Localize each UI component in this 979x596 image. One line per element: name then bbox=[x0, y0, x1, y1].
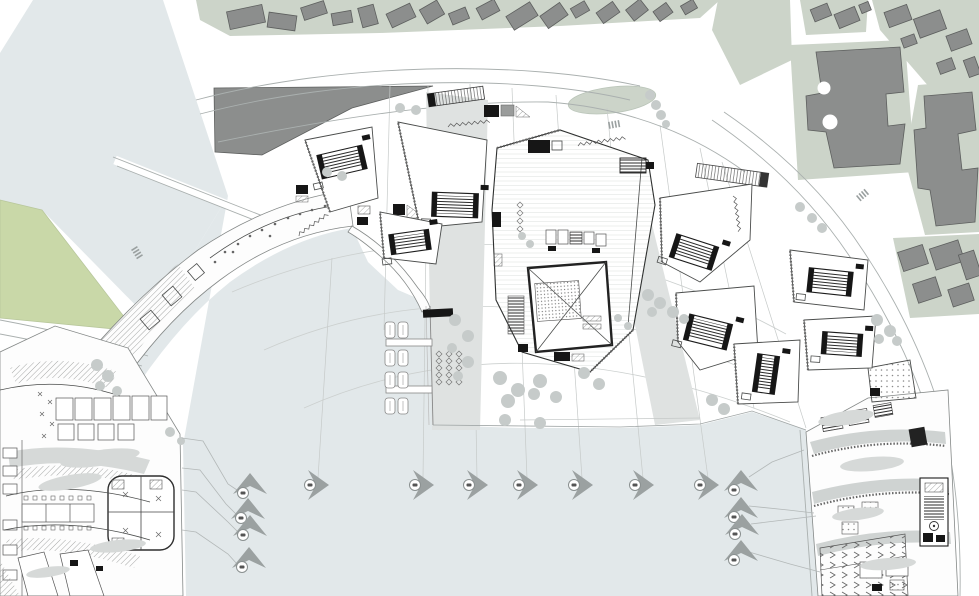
tree-icon bbox=[493, 371, 507, 385]
tree-icon bbox=[550, 391, 562, 403]
tree-icon bbox=[499, 414, 511, 426]
city-block-b1 bbox=[712, 0, 792, 85]
tree-icon bbox=[165, 427, 175, 437]
core-cap bbox=[473, 194, 479, 218]
satellite-room bbox=[481, 185, 489, 190]
boat bbox=[398, 322, 408, 338]
pavilion-building bbox=[790, 250, 868, 310]
tree-icon bbox=[647, 307, 657, 317]
pavilion-building bbox=[804, 316, 876, 370]
tree-icon bbox=[91, 359, 103, 371]
tree-icon bbox=[533, 374, 547, 388]
ramp-wedge bbox=[516, 106, 530, 117]
kiosk bbox=[393, 204, 405, 215]
stair-west bbox=[494, 254, 502, 266]
tree-icon bbox=[679, 314, 689, 324]
arc-stair bbox=[358, 206, 370, 214]
tree-icon bbox=[528, 388, 540, 400]
tree-icon bbox=[624, 322, 632, 330]
courtyard-tree bbox=[823, 115, 838, 130]
tree-icon bbox=[395, 103, 405, 113]
stair-strip bbox=[508, 296, 524, 334]
tree-icon bbox=[526, 240, 534, 248]
core-west bbox=[492, 212, 501, 227]
tree-icon bbox=[518, 232, 526, 240]
satellite-room bbox=[865, 326, 873, 332]
tree-icon bbox=[411, 105, 421, 115]
tree-icon bbox=[817, 223, 827, 233]
tree-icon bbox=[614, 314, 622, 322]
kiosk bbox=[296, 185, 308, 194]
stair-south bbox=[572, 354, 584, 361]
tree-icon bbox=[322, 167, 332, 177]
central-main-building bbox=[492, 130, 655, 372]
tree-icon bbox=[884, 325, 896, 337]
tree-icon bbox=[654, 297, 666, 309]
marker-label-smudge bbox=[308, 484, 313, 487]
canteen-block bbox=[22, 504, 94, 522]
pond-green-oval bbox=[567, 82, 658, 119]
tree-icon bbox=[578, 367, 590, 379]
core-south bbox=[554, 352, 570, 361]
marker-label-smudge bbox=[241, 492, 246, 495]
dark-room bbox=[909, 427, 928, 448]
marker-label-smudge bbox=[240, 566, 245, 569]
tree-icon bbox=[112, 386, 122, 396]
kiosk bbox=[357, 217, 368, 225]
tree-icon bbox=[453, 371, 463, 381]
tree-icon bbox=[462, 356, 474, 368]
boat bbox=[385, 350, 395, 366]
marker-label-smudge bbox=[413, 484, 418, 487]
rounded-pavilion-building bbox=[108, 476, 174, 550]
boat bbox=[398, 350, 408, 366]
tree-icon bbox=[593, 378, 605, 390]
tree-icon bbox=[656, 110, 666, 120]
kiosk bbox=[501, 105, 514, 116]
bench bbox=[583, 316, 601, 321]
crosswalk-bar bbox=[617, 120, 620, 127]
crosswalk-bar bbox=[614, 121, 617, 128]
tree-icon bbox=[511, 383, 525, 397]
tree-icon bbox=[447, 343, 457, 353]
tree-icon bbox=[642, 289, 654, 301]
tree-icon bbox=[534, 417, 546, 429]
tree-icon bbox=[662, 120, 670, 128]
satellite-room bbox=[856, 264, 864, 270]
tree-icon bbox=[892, 336, 902, 346]
tree-icon bbox=[462, 330, 474, 342]
marker-label-smudge bbox=[733, 533, 738, 536]
marker-label-smudge bbox=[517, 484, 522, 487]
tree-icon bbox=[645, 90, 655, 100]
jetty bbox=[386, 339, 432, 346]
boat bbox=[398, 372, 408, 388]
core-north bbox=[528, 140, 550, 153]
boat bbox=[385, 322, 395, 338]
core-east-b bbox=[646, 162, 654, 169]
pavilion-building bbox=[734, 340, 800, 405]
tree-icon bbox=[95, 381, 105, 391]
fan-pavilion-core bbox=[870, 388, 880, 396]
boat bbox=[385, 372, 395, 388]
site-plan-canvas bbox=[0, 0, 979, 596]
bench bbox=[583, 324, 601, 329]
marker-label-smudge bbox=[241, 534, 246, 537]
dotted-room bbox=[842, 522, 858, 534]
kiosk bbox=[484, 105, 499, 117]
tree-icon bbox=[795, 202, 805, 212]
tree-icon bbox=[874, 334, 884, 344]
kiosk-stair bbox=[296, 196, 308, 202]
marker-label-smudge bbox=[633, 484, 638, 487]
boat bbox=[385, 398, 395, 414]
marker-label-smudge bbox=[572, 484, 577, 487]
tree-icon bbox=[667, 306, 679, 318]
tree-icon bbox=[718, 403, 730, 415]
crosswalk-mark bbox=[608, 120, 620, 129]
thin-building-east bbox=[695, 163, 768, 187]
core-stripes bbox=[824, 335, 859, 353]
tree-icon bbox=[706, 394, 718, 406]
courtyard-tree bbox=[818, 82, 831, 95]
crosswalk-mark bbox=[856, 189, 869, 202]
pavilion-building bbox=[657, 184, 752, 282]
marker-label-smudge bbox=[732, 559, 737, 562]
core-southwest bbox=[518, 344, 528, 352]
marker-label-smudge bbox=[698, 484, 703, 487]
crosswalk-bar bbox=[611, 121, 614, 128]
stair-core-tower bbox=[920, 478, 948, 546]
tree-icon bbox=[102, 370, 114, 382]
tree-icon bbox=[871, 314, 883, 326]
tree-icon bbox=[651, 100, 661, 110]
pier-head bbox=[423, 308, 453, 318]
tree-icon bbox=[337, 171, 347, 181]
marker-label-smudge bbox=[732, 516, 737, 519]
core-stripes bbox=[435, 195, 476, 214]
pavilion-building bbox=[378, 212, 443, 265]
boat bbox=[398, 398, 408, 414]
auditorium-seating bbox=[535, 281, 582, 322]
marker-label-smudge bbox=[732, 489, 737, 492]
marker-label-smudge bbox=[239, 517, 244, 520]
masterplan-drawing bbox=[0, 0, 979, 596]
tree-icon bbox=[807, 213, 817, 223]
core-east bbox=[620, 158, 646, 173]
marker-label-smudge bbox=[467, 484, 472, 487]
tree-icon bbox=[501, 394, 515, 408]
core-cap bbox=[432, 192, 438, 216]
tree-icon bbox=[449, 314, 461, 326]
